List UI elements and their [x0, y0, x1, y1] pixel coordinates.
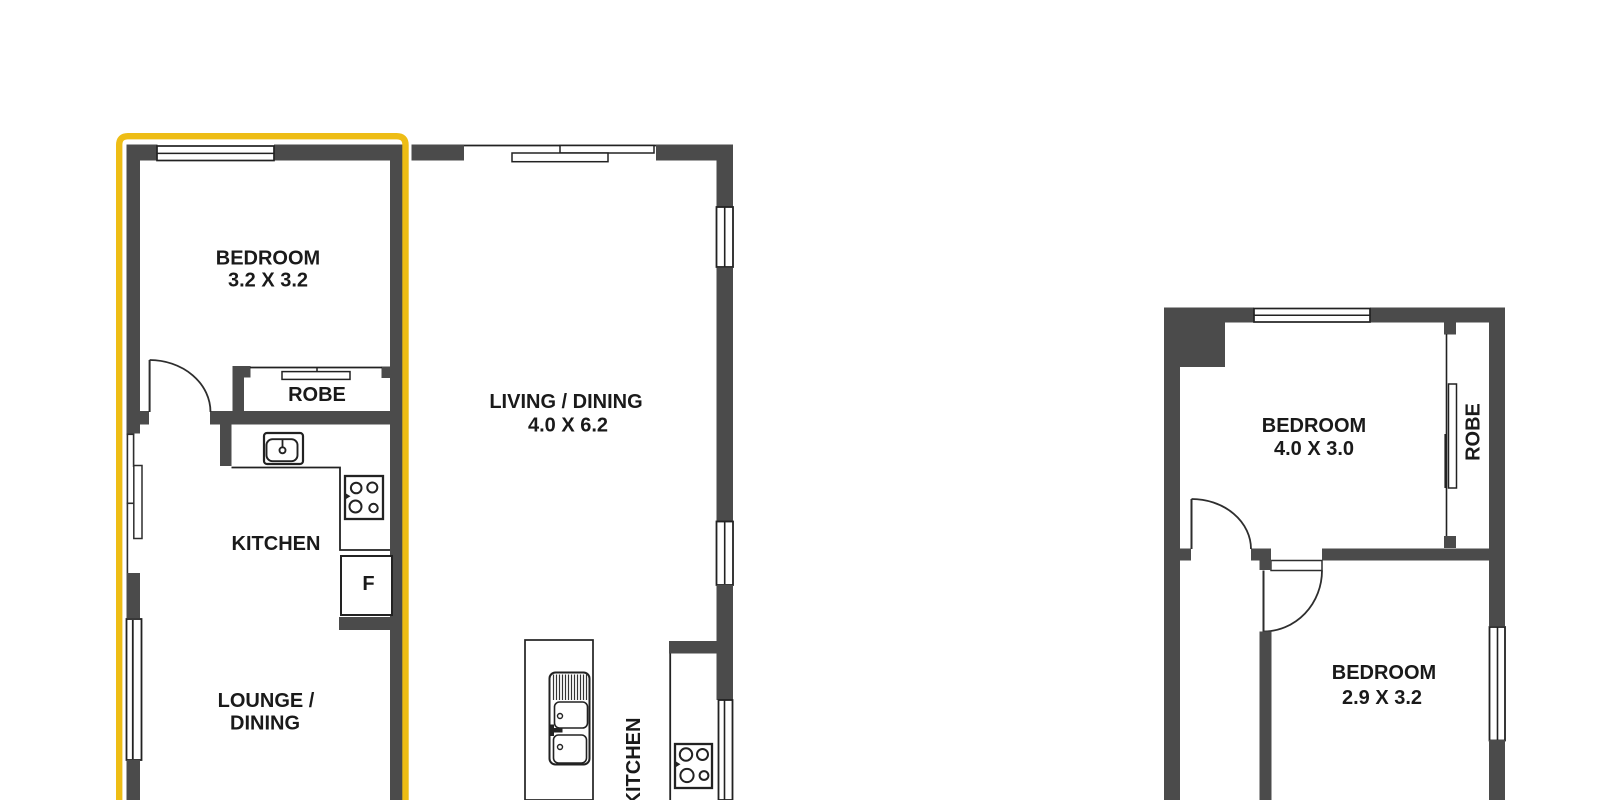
svg-text:LOUNGE /: LOUNGE / [218, 690, 315, 712]
svg-text:ROBE: ROBE [288, 384, 346, 406]
svg-text:4.0 X 6.2: 4.0 X 6.2 [528, 415, 608, 437]
svg-text:BEDROOM: BEDROOM [1332, 662, 1436, 684]
svg-text:BEDROOM: BEDROOM [1262, 415, 1366, 437]
svg-text:KITCHEN: KITCHEN [623, 718, 645, 800]
svg-text:3.2 X 3.2: 3.2 X 3.2 [228, 270, 308, 292]
svg-text:LIVING / DINING: LIVING / DINING [489, 391, 642, 413]
svg-text:DINING: DINING [230, 713, 300, 735]
svg-text:4.0 X 3.0: 4.0 X 3.0 [1274, 438, 1354, 460]
svg-text:ROBE: ROBE [1463, 403, 1485, 461]
svg-text:KITCHEN: KITCHEN [232, 533, 321, 555]
svg-text:BEDROOM: BEDROOM [216, 248, 320, 270]
svg-text:F: F [362, 573, 374, 595]
svg-text:2.9 X 3.2: 2.9 X 3.2 [1342, 687, 1422, 709]
